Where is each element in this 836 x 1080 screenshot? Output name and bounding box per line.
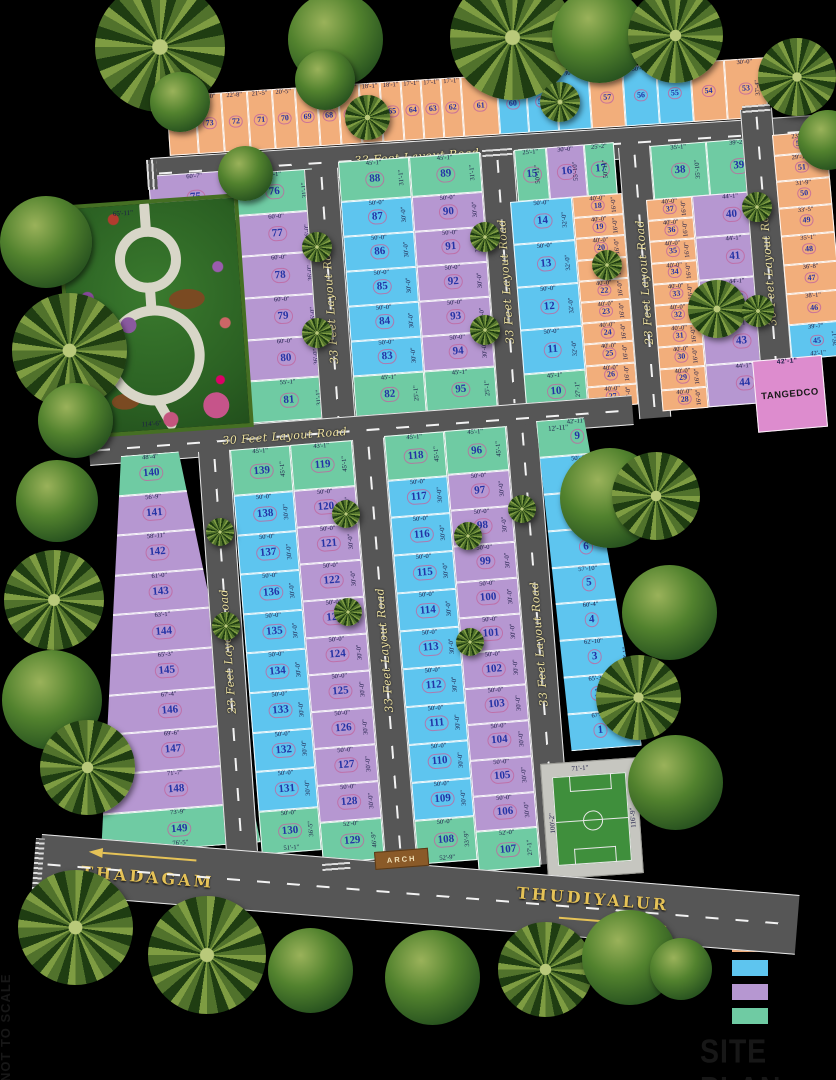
plot-dimension: 50'-0" — [490, 723, 506, 731]
plot-dimension: 30'-0" — [296, 661, 304, 677]
plot-dimension: 27'-1" — [575, 381, 583, 397]
tree-icon — [218, 146, 273, 201]
plot-dimension: 16'-0" — [621, 323, 629, 339]
plot-dimension: 45'-1" — [434, 446, 442, 462]
tangedco-label: TANGEDCO — [761, 386, 819, 402]
palm-tree-icon — [612, 452, 700, 540]
plot-dimension: 45'-1" — [467, 429, 483, 437]
plot-dimension: 30'-1" — [605, 426, 613, 442]
plot-number: 55 — [667, 87, 682, 99]
plot-dimension: 50'-0" — [376, 305, 392, 313]
plot-136: 13650'-0"30'-0" — [240, 570, 303, 614]
plot-dimension: 17'-1" — [403, 81, 419, 89]
plot-number: 147 — [160, 741, 186, 758]
plot-dimension: 40'-0" — [671, 325, 687, 333]
plot-dimension: 50'-0" — [320, 526, 336, 534]
plot-dimension: 45'-1" — [252, 448, 268, 456]
block-b-top-row: 1525'-1"50'-11"1630'-0"55'-10"1725'-2"50… — [514, 142, 618, 202]
plot-dimension: 30'-0" — [461, 789, 469, 805]
plot-number: 85 — [372, 279, 392, 295]
plot-dimension: 50'-0" — [337, 747, 353, 755]
plot-number: 47 — [804, 271, 819, 284]
palm-tree-icon — [334, 598, 362, 626]
plot-dimension: 32'-0" — [565, 254, 573, 270]
plot-dimension: 60'-0" — [271, 255, 287, 263]
plot-dimension: 30'-0" — [455, 714, 463, 730]
plot-dimension: 30'-0" — [510, 623, 518, 639]
plot-133: 13350'-0"30'-0" — [249, 689, 312, 733]
plot-dimension: 30'-0" — [521, 766, 529, 782]
plot-dimension: 50'-0" — [433, 781, 449, 789]
plot-number: 137 — [255, 544, 281, 561]
plot-dimension: 40'-0" — [592, 238, 608, 246]
plot-100: 10050'-0"30'-0" — [456, 577, 521, 618]
plot-dimension: 32'-0" — [569, 297, 577, 313]
plot-number: 41 — [725, 248, 745, 265]
plot-dimension: 30'-0" — [411, 347, 419, 363]
palm-tree-icon — [508, 495, 536, 523]
plot-dimension: 50'-0" — [482, 616, 498, 624]
plot-dimension: 50'-0" — [277, 770, 293, 778]
plot-number: 92 — [443, 274, 463, 290]
plot-86: 8650'-0"30'-0" — [343, 232, 416, 272]
tree-icon — [268, 928, 353, 1013]
plot-number: 139 — [249, 462, 275, 479]
plot-dimension: 46'-9" — [371, 831, 379, 847]
plot-number: 12 — [539, 299, 559, 316]
palm-tree-icon — [742, 192, 772, 222]
plot-dimension: 45'-1" — [342, 455, 350, 471]
plot-dimension: 50'-0" — [424, 667, 440, 675]
plot-number: 138 — [252, 505, 278, 522]
plot-dimension: 50'-0" — [371, 235, 387, 243]
plot-dimension: 32'-0" — [572, 340, 580, 356]
palm-tree-icon — [212, 612, 240, 640]
plot-dimension: 36'-5" — [308, 821, 316, 837]
plot-number: 79 — [273, 309, 293, 325]
tangedco-top-dim: 42'-1" — [777, 358, 798, 366]
palm-tree-icon — [758, 38, 836, 116]
plot-dimension: 30'-0" — [519, 731, 527, 747]
field-left-dim: 100'-2" — [548, 813, 557, 834]
plot-dimension: 30'-0" — [368, 792, 376, 808]
plot-89: 8945'-1"31'-1" — [409, 152, 483, 197]
plot-dimension: 50'-0" — [430, 743, 446, 751]
pitch-center-circle — [582, 809, 603, 830]
road-label: 33 Feet Layout Road — [373, 587, 396, 713]
plot-dimension: 30'-0" — [286, 543, 294, 559]
plot-dimension: 50'-0" — [447, 300, 463, 308]
plot-dimension: 51'-1" — [283, 844, 299, 852]
palm-tree-icon — [302, 318, 332, 348]
plot-111: 11150'-0"30'-0" — [405, 702, 468, 744]
plot-number: 143 — [148, 583, 174, 600]
road-label: 33 Feet Layout Road — [528, 581, 551, 707]
plot-dimension: 50'-0" — [410, 478, 426, 486]
plot-dimension: 69'-6" — [164, 730, 180, 738]
plot-number: 9 — [570, 428, 585, 444]
park-bottom-dim: 114'-6" — [141, 419, 162, 428]
plot-124: 12450'-0"30'-0" — [305, 633, 370, 675]
plot-number: 148 — [163, 781, 189, 798]
plot-number: 94 — [448, 344, 468, 360]
plot-104: 10450'-0"30'-0" — [467, 720, 532, 761]
plot-number: 91 — [441, 239, 461, 255]
plot-number: 113 — [418, 639, 443, 656]
plot-number: 129 — [339, 832, 365, 849]
plot-dimension: 50'-0" — [493, 759, 509, 767]
plot-dimension: 30'-0" — [458, 751, 466, 767]
plot-15: 1525'-1"50'-11" — [514, 147, 550, 201]
plot-number: 62 — [445, 101, 460, 113]
plot-dimension: 45'-1" — [496, 441, 504, 457]
plot-number: 93 — [446, 309, 466, 325]
plot-dimension: 50'-0" — [419, 592, 435, 600]
plot-137: 13750'-0"30'-0" — [237, 531, 300, 575]
palm-tree-icon — [302, 232, 332, 262]
plot-number: 89 — [436, 166, 456, 182]
plot-dimension: 30'-0" — [283, 504, 291, 520]
plot-81: 8155'-1"31'-1" — [249, 376, 330, 423]
plot-85: 8550'-0"30'-0" — [346, 267, 419, 307]
plot-dimension: 50'-0" — [442, 230, 458, 238]
plot-number: 11 — [543, 342, 563, 359]
plot-dimension: 40'-0" — [669, 304, 685, 312]
football-pitch — [552, 772, 632, 866]
tree-icon — [150, 72, 210, 132]
plot-dimension: 71'-7" — [167, 770, 183, 778]
plot-dimension: 56'-9" — [145, 494, 161, 502]
plot-dimension: 50'-0" — [533, 200, 549, 208]
plot-dimension: 50'-0" — [334, 710, 350, 718]
plot-dimension: 30'-0" — [409, 312, 417, 328]
plot-dimension: 33'-5" — [798, 207, 814, 215]
plot-dimension: 61'-0" — [151, 573, 167, 581]
plot-109: 10950'-0"30'-0" — [411, 778, 474, 820]
plot-dimension: 39'-7" — [808, 323, 824, 331]
plot-number: 4 — [584, 612, 599, 628]
plot-dimension: 30'-0" — [502, 516, 510, 532]
plot-number: 125 — [328, 683, 354, 700]
plot-dimension: 52'-9" — [439, 854, 455, 862]
plot-dimension: 50'-0" — [331, 673, 347, 681]
plot-117: 11750'-0"30'-0" — [387, 476, 450, 518]
plot-number: 132 — [271, 741, 297, 758]
plot-dimension: 50'-11" — [602, 159, 610, 178]
plot-number: 14 — [533, 213, 553, 230]
plot-number: 88 — [365, 171, 385, 187]
plot-dimension: 40'-0" — [596, 280, 612, 288]
plot-135: 13550'-0"30'-0" — [243, 610, 306, 654]
plot-dimension: 50'-0" — [373, 270, 389, 278]
plot-number: 13 — [536, 256, 556, 273]
tree-icon — [650, 938, 712, 1000]
plot-number: 109 — [430, 791, 456, 808]
tree-icon — [0, 196, 92, 288]
plot-number: 48 — [802, 242, 817, 255]
plot-dimension: 35'-10" — [695, 160, 703, 179]
plot-dimension: 50'-0" — [262, 573, 278, 581]
plot-dimension: 27'-1" — [527, 840, 535, 856]
plot-dimension: 30'-0" — [516, 695, 524, 711]
tree-icon — [295, 50, 355, 110]
plot-dimension: 50'-0" — [496, 794, 512, 802]
legend-swatch-purple — [732, 984, 768, 1000]
plot-dimension: 44'-1" — [725, 236, 741, 244]
plot-dimension: 30'-0" — [507, 588, 515, 604]
plot-dimension: 50'-0" — [485, 652, 501, 660]
plot-number: 140 — [138, 465, 164, 482]
plot-dimension: 50'-0" — [256, 494, 272, 502]
plot-dimension: 16'-0" — [693, 347, 701, 363]
plot-dimension: 40'-0" — [604, 386, 620, 394]
tangedco-block: 42'-1" TANGEDCO — [752, 355, 828, 433]
plot-dimension: 30'-0" — [293, 622, 301, 638]
plot-dimension: 30'-0" — [404, 242, 412, 258]
field-top-dim: 71'-1" — [571, 764, 588, 773]
plot-dimension: 60'-7" — [186, 173, 202, 181]
plot-number: 71 — [254, 114, 269, 126]
plot-126: 12650'-0"30'-0" — [311, 707, 376, 749]
plot-dimension: 16'-0" — [683, 221, 691, 237]
plot-number: 111 — [425, 715, 449, 732]
plot-dimension: 16'-0" — [681, 199, 689, 215]
page-title: SITE PLAN — [700, 1034, 829, 1080]
palm-tree-icon — [596, 655, 681, 740]
plot-dimension: 50'-0" — [340, 784, 356, 792]
plot-number: 124 — [325, 646, 351, 663]
plot-dimension: 45'-1" — [366, 160, 382, 168]
plot-dimension: 30'-0" — [524, 802, 532, 818]
plot-dimension: 50'-0" — [473, 509, 489, 517]
plot-dimension: 22'-8" — [226, 92, 242, 100]
plot-45: 4539'-7"42'-1"26'-1" — [789, 320, 836, 360]
plot-dimension: 50'-0" — [540, 286, 556, 294]
plot-number: 115 — [412, 564, 437, 581]
plot-72: 7222'-8" — [221, 91, 251, 153]
plot-dimension: 30'-0" — [557, 146, 573, 154]
palm-tree-icon — [148, 896, 266, 1014]
plot-number: 3 — [587, 649, 602, 665]
plot-115: 11550'-0"30'-0" — [393, 551, 456, 593]
plot-107: 10752'-0"27'-1" — [476, 827, 541, 871]
palm-tree-icon — [332, 500, 360, 528]
plot-dimension: 40'-0" — [597, 301, 613, 309]
plot-dimension: 50'-0" — [543, 329, 559, 337]
plot-dimension: 30'-0" — [348, 534, 356, 550]
plot-dimension: 50'-0" — [416, 554, 432, 562]
plot-12: 1250'-0"32'-0" — [517, 283, 582, 331]
palm-tree-icon — [40, 720, 135, 815]
legend-swatch-blue — [732, 960, 768, 976]
plot-dimension: 50'-0" — [323, 562, 339, 570]
plot-dimension: 45'-1" — [406, 434, 422, 442]
plot-number: 53 — [739, 82, 754, 94]
plot-dimension: 30'-0" — [363, 718, 371, 734]
road-label: 23 Feet Layout Road — [217, 589, 239, 715]
plot-number: 136 — [258, 584, 284, 601]
plot-121: 12150'-0"30'-0" — [296, 523, 361, 565]
plot-14: 1450'-0"32'-0" — [510, 197, 575, 245]
plot-dimension: 30'-0" — [499, 481, 507, 497]
plot-dimension: 67'-4" — [161, 691, 177, 699]
plot-5: 557'-10"30'-1" — [548, 562, 631, 605]
plot-number: 84 — [375, 314, 395, 330]
plot-dimension: 30'-0" — [401, 207, 409, 223]
plot-number: 103 — [484, 696, 510, 713]
plot-dimension: 63'-1" — [154, 612, 170, 620]
plot-dimension: 50'-0" — [449, 335, 465, 343]
plot-dimension: 16'-0" — [624, 365, 632, 381]
plot-dimension: 30'-0" — [443, 563, 451, 579]
plot-dimension: 40'-0" — [599, 322, 615, 330]
plot-dimension: 30'-0" — [472, 202, 480, 218]
plot-number: 40 — [721, 206, 741, 223]
plot-dimension: 45'-1" — [437, 155, 453, 163]
plot-dimension: 30'-0" — [305, 780, 313, 796]
plot-number: 63 — [425, 103, 440, 115]
plot-dimension: 30'-0" — [477, 272, 485, 288]
plot-number: 57 — [600, 91, 615, 103]
plot-dimension: 30'-0" — [365, 755, 373, 771]
site-plan-canvas: 7424'-8"7323'-0"7222'-8"7121'-5"7020'-5"… — [0, 0, 836, 1080]
plot-number: 144 — [151, 623, 177, 640]
plot-96: 9645'-1"45'-1" — [444, 426, 509, 475]
plot-number: 110 — [427, 753, 452, 770]
tree-icon — [628, 735, 723, 830]
plot-112: 11250'-0"30'-0" — [402, 665, 465, 707]
plot-dimension: 30'-0" — [360, 681, 368, 697]
plot-dimension: 33'-9" — [464, 830, 472, 846]
palm-tree-icon — [470, 222, 500, 252]
plot-dimension: 16'-0" — [684, 242, 692, 258]
plot-number: 49 — [799, 214, 814, 227]
plot-17: 1725'-2"50'-11" — [584, 142, 618, 196]
plot-number: 100 — [475, 589, 501, 606]
plot-number: 131 — [274, 781, 300, 798]
plot-number: 43 — [731, 333, 751, 350]
plot-106: 10650'-0"30'-0" — [473, 792, 538, 833]
pitch-goal-box-bottom — [574, 846, 617, 865]
plot-dimension: 30'-0" — [440, 525, 448, 541]
plot-dimension: 42'-11" — [567, 418, 586, 426]
plot-dimension: 32'-0" — [562, 211, 570, 227]
plot-dimension: 55'-1" — [280, 380, 296, 388]
plot-dimension: 16'-0" — [618, 281, 626, 297]
plot-dimension: 40'-0" — [602, 365, 618, 373]
plot-number: 130 — [277, 822, 303, 839]
plot-dimension: 50'-0" — [439, 195, 455, 203]
plot-number: 105 — [489, 768, 515, 785]
plot-97: 9750'-0"30'-0" — [447, 470, 512, 511]
plot-dimension: 50'-0" — [317, 489, 333, 497]
plot-116: 11650'-0"30'-0" — [390, 513, 453, 555]
plot-dimension: 31'-1" — [399, 169, 407, 185]
plot-84: 8450'-0"30'-0" — [348, 302, 421, 342]
plot-dimension: 55'-10" — [572, 161, 580, 180]
plot-dimension: 18'-1" — [383, 82, 399, 90]
plot-dimension: 25'-1" — [485, 380, 493, 396]
plot-dimension: 40'-0" — [664, 241, 680, 249]
plot-38: 3835'-1"35'-10" — [650, 142, 710, 200]
plot-dimension: 16'-0" — [694, 369, 702, 385]
plot-dimension: 58'-11" — [147, 533, 166, 541]
plot-dimension: 45'-1" — [381, 375, 397, 383]
plot-dimension: 50'-0" — [271, 691, 287, 699]
palm-tree-icon — [18, 870, 133, 985]
plot-dimension: 16'-0" — [686, 263, 694, 279]
plot-number: 96 — [467, 442, 487, 459]
plot-number: 87 — [367, 209, 387, 225]
plot-dimension: 16'-0" — [611, 196, 619, 212]
plot-number: 118 — [403, 447, 428, 464]
plot-114: 11450'-0"30'-0" — [396, 589, 459, 631]
plot-number: 128 — [336, 793, 362, 810]
plot-dimension: 25'-1" — [522, 149, 538, 157]
plot-number: 86 — [370, 244, 390, 260]
plot-number: 54 — [701, 85, 716, 97]
palm-tree-icon — [345, 95, 390, 140]
plot-dimension: 50'-0" — [368, 200, 384, 208]
plot-number: 121 — [316, 535, 342, 552]
plot-number: 133 — [268, 702, 294, 719]
plot-dimension: 30'-0" — [406, 277, 414, 293]
plot-134: 13450'-0"30'-0" — [246, 649, 309, 693]
plot-dimension: 57'-10" — [578, 565, 597, 573]
plot-122: 12250'-0"30'-0" — [299, 560, 364, 602]
palm-tree-icon — [4, 550, 104, 650]
palm-tree-icon — [592, 250, 622, 280]
plot-number: 44 — [735, 375, 755, 392]
palm-tree-icon — [206, 518, 234, 546]
palm-tree-icon — [454, 522, 482, 550]
plot-dimension: 50'-0" — [328, 636, 344, 644]
plot-number: 117 — [406, 488, 431, 505]
plot-dimension: 50'-0" — [487, 687, 503, 695]
plot-number: 61 — [473, 99, 488, 111]
plot-number: 50 — [797, 187, 812, 200]
plot-dimension: 50'-11" — [535, 165, 543, 184]
plot-number: 90 — [438, 204, 458, 220]
plot-number: 114 — [415, 602, 440, 619]
plot-dimension: 45'-1" — [280, 461, 288, 477]
plot-46: 4638'-1" — [786, 290, 836, 325]
plot-dimension: 43'-1" — [313, 443, 329, 451]
plot-number: 56 — [634, 89, 649, 101]
plot-dimension: 65'-3" — [158, 651, 174, 659]
plot-dimension: 50'-0" — [427, 705, 443, 713]
plot-dimension: 30'-0" — [302, 740, 310, 756]
plot-16: 1630'-0"55'-10" — [546, 145, 588, 200]
plot-dimension: 45'-1" — [547, 372, 563, 380]
plot-number: 80 — [276, 350, 296, 366]
plot-132: 13250'-0"30'-0" — [252, 728, 315, 772]
plot-dimension: 40'-0" — [663, 220, 679, 228]
plot-number: 146 — [157, 702, 183, 719]
plot-dimension: 40'-0" — [591, 217, 607, 225]
plot-128: 12850'-0"30'-0" — [317, 781, 382, 823]
plot-number: 68 — [322, 109, 337, 121]
plot-number: 145 — [154, 662, 180, 679]
plot-dimension: 62'-10" — [584, 639, 603, 647]
scale-note: NOT TO SCALE — [0, 958, 13, 1080]
zebra-crossing — [146, 159, 158, 190]
plot-dimension: 50'-0" — [413, 516, 429, 524]
plot-87: 8750'-0"30'-0" — [341, 197, 414, 237]
plot-105: 10550'-0"30'-0" — [470, 756, 535, 797]
plot-dimension: 30'-0" — [505, 552, 513, 568]
plot-103: 10350'-0"30'-0" — [464, 684, 529, 725]
